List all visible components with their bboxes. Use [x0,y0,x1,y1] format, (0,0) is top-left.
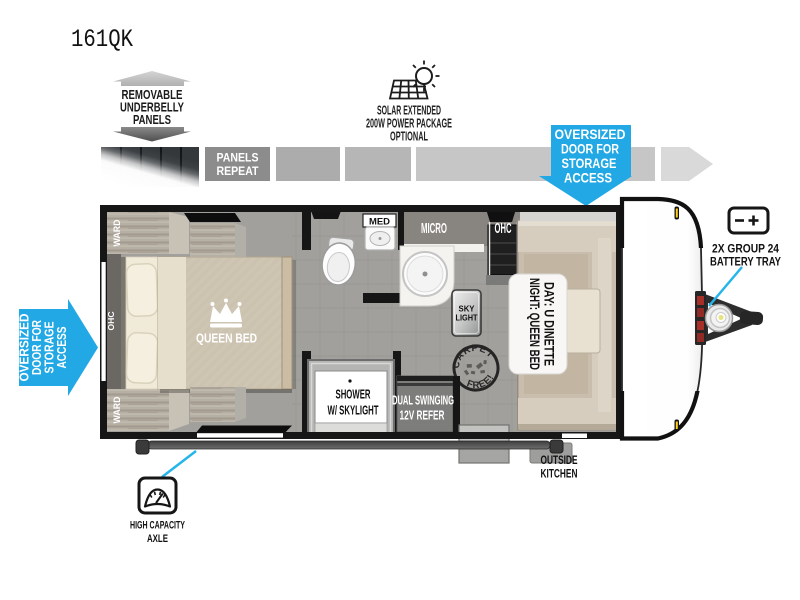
svg-text:QUEEN BED: QUEEN BED [196,332,257,346]
svg-text:12V REFER: 12V REFER [400,409,445,423]
svg-text:W/ SKYLIGHT: W/ SKYLIGHT [328,403,379,418]
svg-text:DAY: U DINETTE: DAY: U DINETTE [542,282,557,366]
svg-text:PANELS: PANELS [133,112,171,127]
svg-text:BATTERY TRAY: BATTERY TRAY [710,255,781,269]
svg-text:MED: MED [369,217,390,228]
svg-text:HIGH CAPACITY: HIGH CAPACITY [130,520,185,532]
svg-text:SHOWER: SHOWER [336,387,371,402]
svg-text:OVERSIZED: OVERSIZED [555,127,626,142]
svg-text:MICRO: MICRO [421,221,447,237]
svg-text:OUTSIDE: OUTSIDE [541,455,578,467]
svg-text:ACCESS: ACCESS [55,327,69,369]
svg-text:OPTIONAL: OPTIONAL [390,130,428,144]
svg-text:SKY: SKY [459,305,476,314]
svg-text:KITCHEN: KITCHEN [541,469,578,481]
svg-text:AXLE: AXLE [147,533,168,545]
svg-text:DUAL SWINGING: DUAL SWINGING [392,394,454,408]
svg-text:ACCESS: ACCESS [564,171,612,186]
svg-text:2X GROUP 24: 2X GROUP 24 [712,242,779,256]
svg-text:LIGHT: LIGHT [456,314,478,323]
svg-text:WARD: WARD [112,219,123,246]
svg-text:WARD: WARD [112,396,123,423]
svg-text:OHC: OHC [106,312,116,331]
svg-text:STORAGE: STORAGE [562,156,617,171]
svg-text:200W POWER PACKAGE: 200W POWER PACKAGE [366,117,452,131]
svg-text:SOLAR EXTENDED: SOLAR EXTENDED [377,104,441,118]
svg-text:DOOR FOR: DOOR FOR [561,142,619,157]
svg-text:NIGHT: QUEEN BED: NIGHT: QUEEN BED [527,278,542,370]
svg-text:REPEAT: REPEAT [217,166,259,178]
svg-text:161QK: 161QK [71,25,133,54]
svg-text:PANELS: PANELS [217,153,259,165]
svg-text:OHC: OHC [495,221,512,237]
